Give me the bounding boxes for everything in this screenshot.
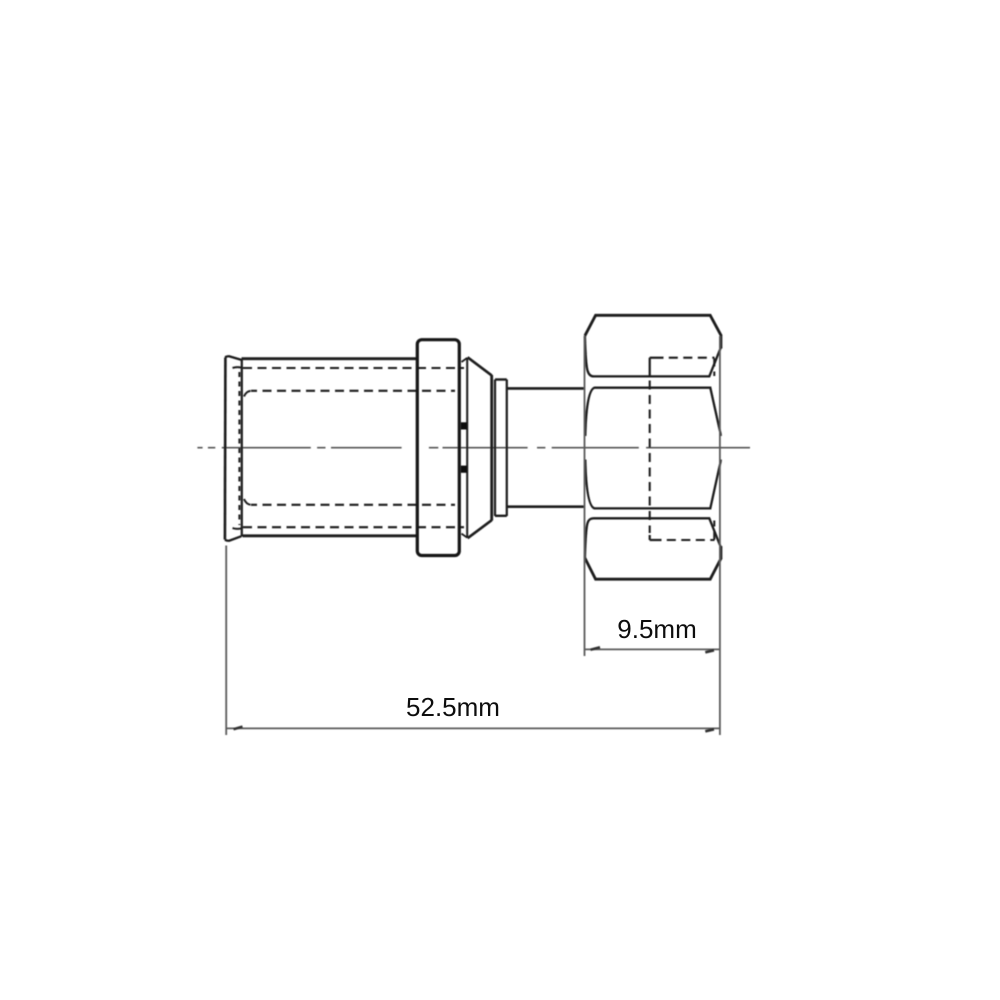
svg-text:52.5mm: 52.5mm: [406, 692, 500, 722]
svg-text:9.5mm: 9.5mm: [617, 614, 696, 644]
